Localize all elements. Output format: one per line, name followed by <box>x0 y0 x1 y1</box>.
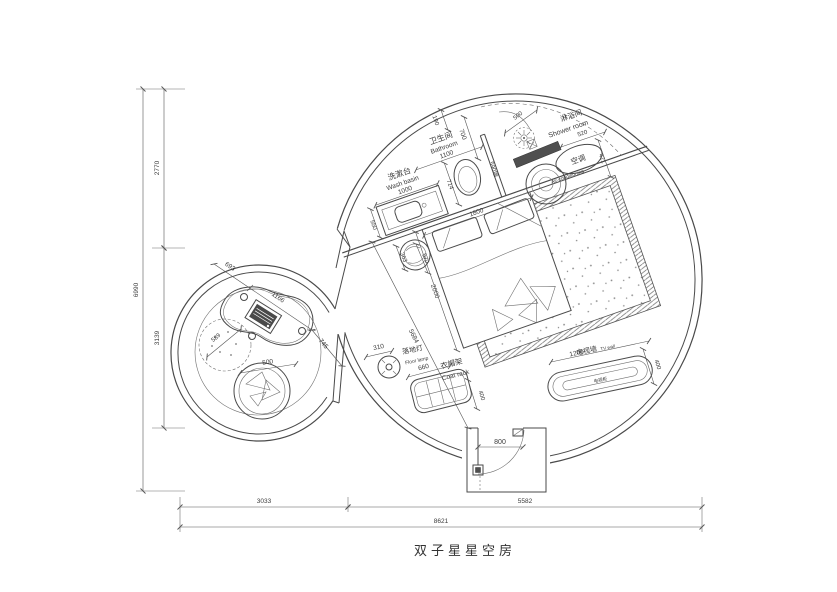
entrance-vestibule: 800 <box>462 424 550 496</box>
entry-door-dim: 800 <box>494 439 506 446</box>
bed-length-dim: 2000 <box>429 284 441 300</box>
small-room-inner-wall <box>178 272 329 434</box>
coat-rack: 660 衣帽架 Coat rack 400 <box>408 355 486 414</box>
bathroom-door-dim: 700 <box>457 128 467 141</box>
door-leaf-end-fill <box>476 468 481 473</box>
toilet-dim: 714 <box>445 179 454 191</box>
width-right-dim: 5582 <box>518 498 533 505</box>
drawing-title: 双子星星空房 <box>414 543 516 558</box>
ac-label-en: Air-conditioning <box>550 169 585 186</box>
floor-plan-drawing: 800 <box>0 0 837 592</box>
wall-offset-dim: 190 <box>430 115 439 127</box>
lounge-seg2-dim: 1166 <box>270 291 286 305</box>
height-bottom-dim: 3139 <box>154 330 161 345</box>
tv-length-dim: 1200 <box>569 349 585 359</box>
seat-dim: 500 <box>262 358 274 367</box>
tv-wall: 电视柜 电视墙 TV wall 1200 400 <box>545 341 661 404</box>
wall-590-dim: 590墙 <box>487 160 500 178</box>
floor-plan-sheet: 800 <box>0 0 837 592</box>
corridor-walls <box>333 229 350 403</box>
washbasin-depth-dim: 550 <box>368 220 377 232</box>
round-seat: 500 <box>234 358 296 419</box>
total-width-dim: 8621 <box>434 518 449 525</box>
floor-lamp: 310 落地灯 Floor lamp <box>366 343 429 378</box>
floor-lamp-label-cn: 落地灯 <box>401 343 423 356</box>
width-left-dim: 3033 <box>257 498 272 505</box>
coat-rack-label-cn: 衣帽架 <box>439 355 464 370</box>
laptop <box>245 300 282 334</box>
bean-bag-dim: 589 <box>211 332 223 343</box>
tv-label-en: TV wall <box>600 344 615 352</box>
lounge-area: 693 1166 745 589 500 <box>199 261 342 419</box>
tv-cabinet-label: 电视柜 <box>593 375 608 385</box>
total-height-dim: 6990 <box>133 282 140 297</box>
ac-label-cn: 空调 <box>569 152 586 166</box>
shower-bench-dim: 520 <box>577 129 589 138</box>
coat-rack-width-dim: 660 <box>418 363 431 373</box>
bean-bag: 589 <box>199 319 251 371</box>
entrance-mask <box>462 424 550 496</box>
floor-lamp-dim: 310 <box>373 343 385 352</box>
ac-unit-icon <box>526 164 566 204</box>
coat-rack-depth-dim: 400 <box>477 390 486 402</box>
tv-depth-dim: 400 <box>653 359 662 371</box>
coat-rack-label-en: Coat rack <box>441 369 470 383</box>
table-knob <box>299 328 306 335</box>
floor-lamp-icon <box>378 356 400 378</box>
table-knob <box>241 294 248 301</box>
height-top-dim: 2770 <box>154 160 161 175</box>
toilet <box>451 157 484 197</box>
stool-dim: 570 <box>420 253 430 265</box>
